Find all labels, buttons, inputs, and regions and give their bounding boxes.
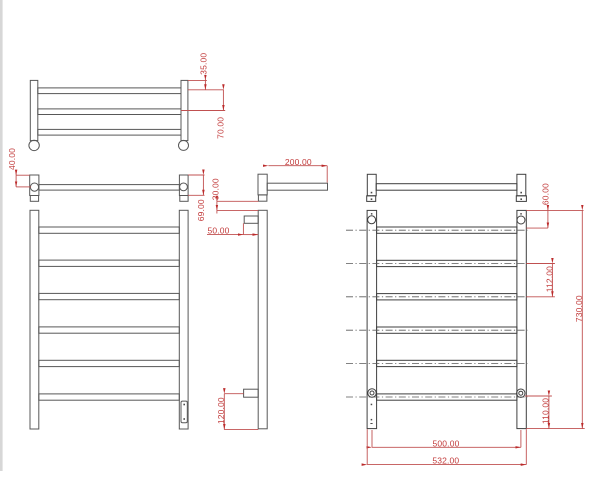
- svg-text:50.00: 50.00: [207, 226, 229, 236]
- svg-text:200.00: 200.00: [285, 157, 312, 167]
- svg-text:112.00: 112.00: [544, 266, 554, 292]
- svg-text:40.00: 40.00: [7, 148, 17, 170]
- svg-text:30.00: 30.00: [210, 178, 220, 200]
- svg-text:110.00: 110.00: [541, 398, 551, 424]
- svg-text:69.00: 69.00: [196, 199, 206, 221]
- svg-text:70.00: 70.00: [216, 117, 226, 139]
- svg-text:730.00: 730.00: [574, 295, 584, 322]
- svg-text:500.00: 500.00: [433, 438, 460, 448]
- svg-text:532.00: 532.00: [432, 455, 459, 465]
- svg-text:60.00: 60.00: [541, 183, 551, 205]
- svg-text:35.00: 35.00: [199, 53, 209, 75]
- svg-text:120.00: 120.00: [216, 397, 226, 424]
